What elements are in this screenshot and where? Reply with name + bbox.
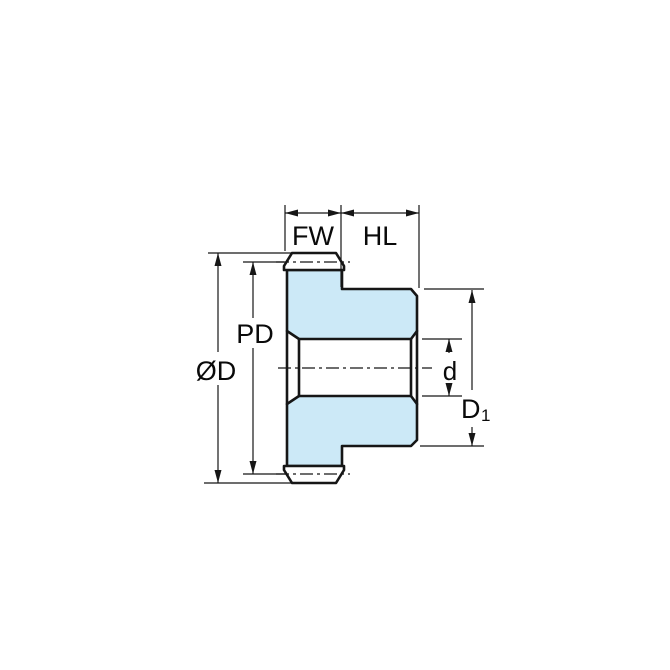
label-outside-diameter: ØD bbox=[196, 356, 237, 386]
arrow-od-top-icon bbox=[215, 253, 222, 266]
drawing-canvas: FW HL PD ØD d D 1 bbox=[0, 0, 670, 670]
arrow-hl-right-icon bbox=[406, 210, 419, 217]
label-face-width: FW bbox=[292, 221, 334, 251]
label-hub-length: HL bbox=[363, 221, 398, 251]
arrow-hl-left-icon bbox=[341, 210, 354, 217]
label-hub-diameter: D bbox=[461, 394, 481, 424]
arrow-pd-bottom-icon bbox=[250, 461, 257, 474]
label-bore-diameter: d bbox=[443, 356, 457, 386]
arrow-d1-top-icon bbox=[469, 290, 476, 303]
gear-body-lower-section bbox=[287, 396, 417, 466]
label-pitch-diameter: PD bbox=[236, 319, 274, 349]
arrow-d1-bottom-icon bbox=[469, 433, 476, 446]
label-hub-diameter-subscript: 1 bbox=[481, 406, 490, 425]
arrow-od-bottom-icon bbox=[215, 470, 222, 483]
gear-dimension-diagram: FW HL PD ØD d D 1 bbox=[0, 0, 670, 670]
gear-body-upper-section bbox=[287, 270, 417, 339]
arrow-fw-left-icon bbox=[285, 210, 298, 217]
arrow-fw-right-icon bbox=[328, 210, 341, 217]
arrow-pd-top-icon bbox=[250, 262, 257, 275]
arrow-d-top-icon bbox=[446, 339, 453, 352]
